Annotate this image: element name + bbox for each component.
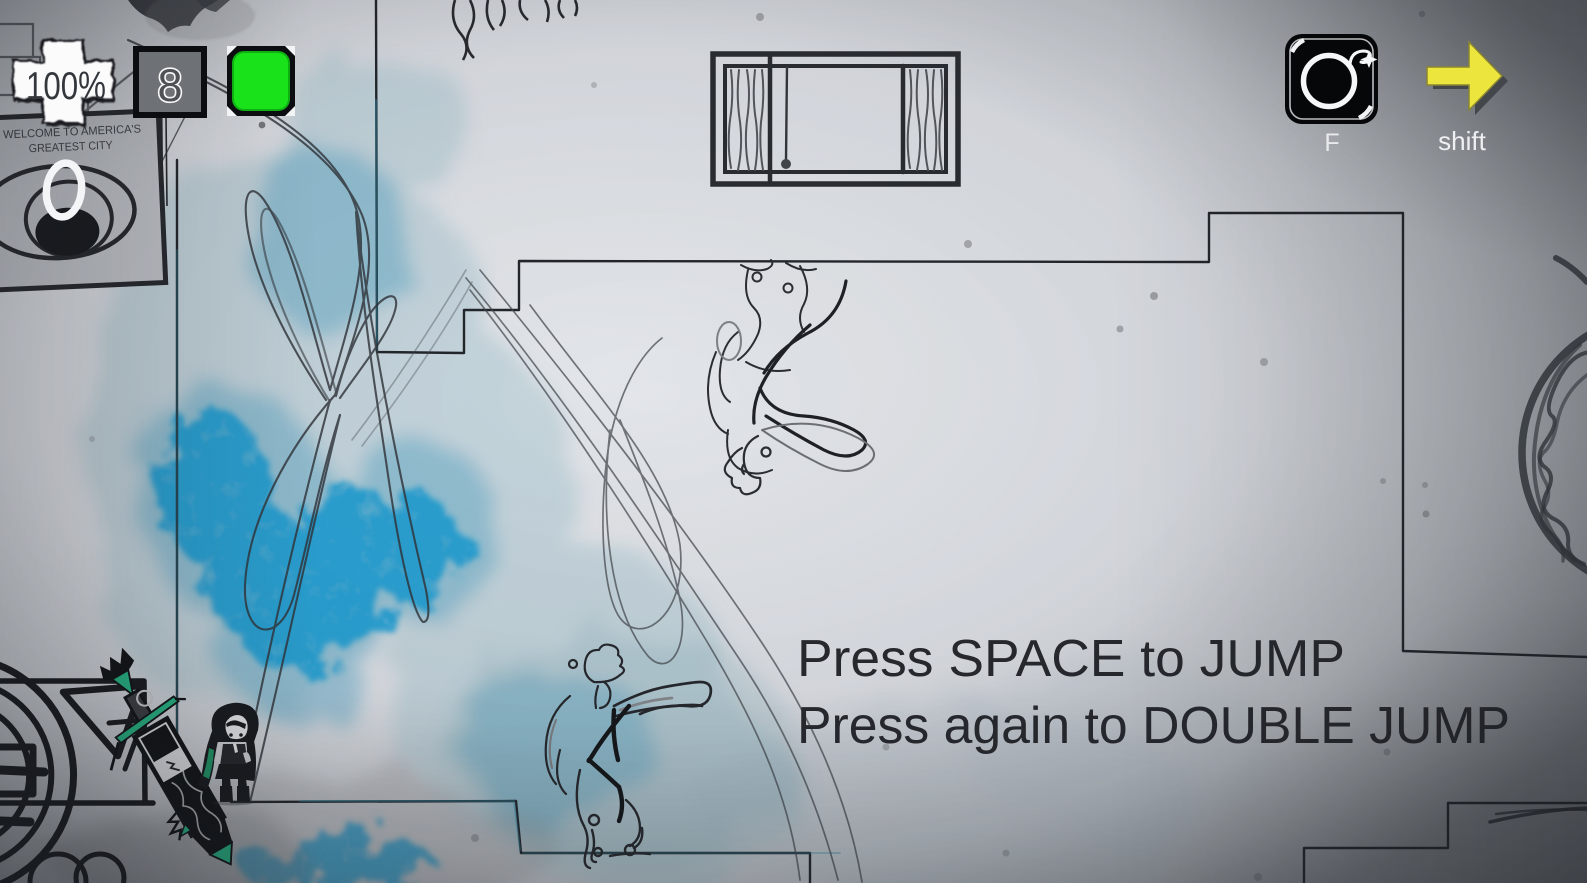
svg-text:shift: shift (1438, 126, 1486, 156)
svg-text:8: 8 (157, 60, 182, 111)
svg-text:F: F (1324, 129, 1339, 157)
svg-text:100%: 100% (26, 65, 106, 108)
